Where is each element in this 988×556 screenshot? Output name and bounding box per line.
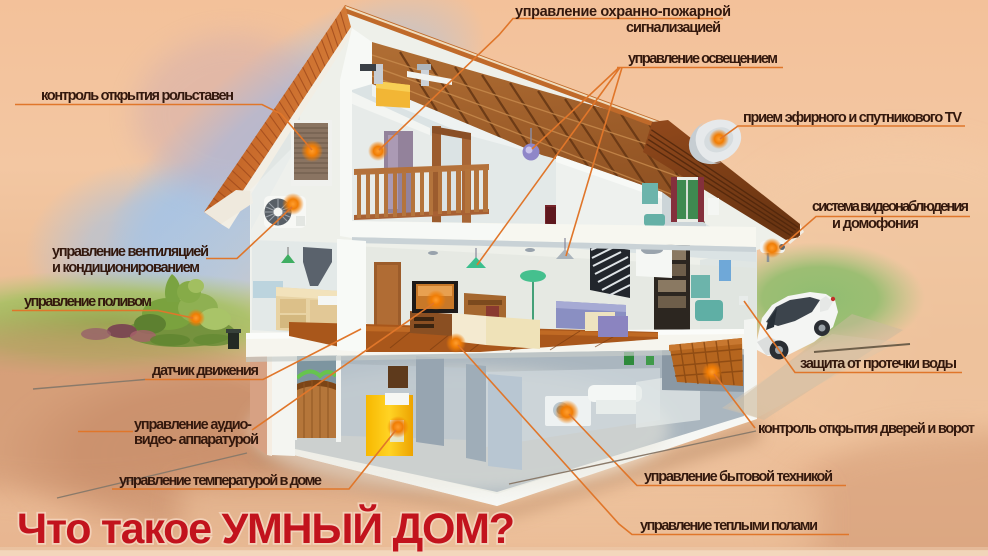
svg-text:видео- аппаратурой: видео- аппаратурой xyxy=(134,432,259,448)
svg-text:сигнализацией: сигнализацией xyxy=(626,20,721,36)
svg-text:управление вентиляцией: управление вентиляцией xyxy=(52,244,209,260)
svg-text:управление температурой в доме: управление температурой в доме xyxy=(119,473,322,489)
svg-text:прием эфирного и спутникового: прием эфирного и спутникового TV xyxy=(743,110,962,126)
svg-text:контроль открытия дверей и вор: контроль открытия дверей и ворот xyxy=(758,421,975,437)
svg-text:управление охранно-пожарной: управление охранно-пожарной xyxy=(515,4,731,20)
svg-text:и кондиционированием: и кондиционированием xyxy=(52,260,200,276)
svg-text:управление бытовой техникой: управление бытовой техникой xyxy=(644,469,833,485)
svg-text:защита от протечки воды: защита от протечки воды xyxy=(800,356,957,372)
svg-text:управление поливом: управление поливом xyxy=(24,294,152,310)
svg-text:управление освещением: управление освещением xyxy=(628,51,778,67)
svg-text:контроль открытия рольставен: контроль открытия рольставен xyxy=(41,88,234,104)
svg-text:управление аудио-: управление аудио- xyxy=(134,417,252,433)
svg-text:управление теплыми полами: управление теплыми полами xyxy=(640,518,818,534)
svg-text:Что такое УМНЫЙ ДОМ?: Что такое УМНЫЙ ДОМ? xyxy=(17,504,515,553)
svg-text:система видеонаблюдения: система видеонаблюдения xyxy=(812,199,969,215)
svg-text:датчик движения: датчик движения xyxy=(152,363,259,379)
svg-text:и домофония: и домофония xyxy=(832,216,919,232)
